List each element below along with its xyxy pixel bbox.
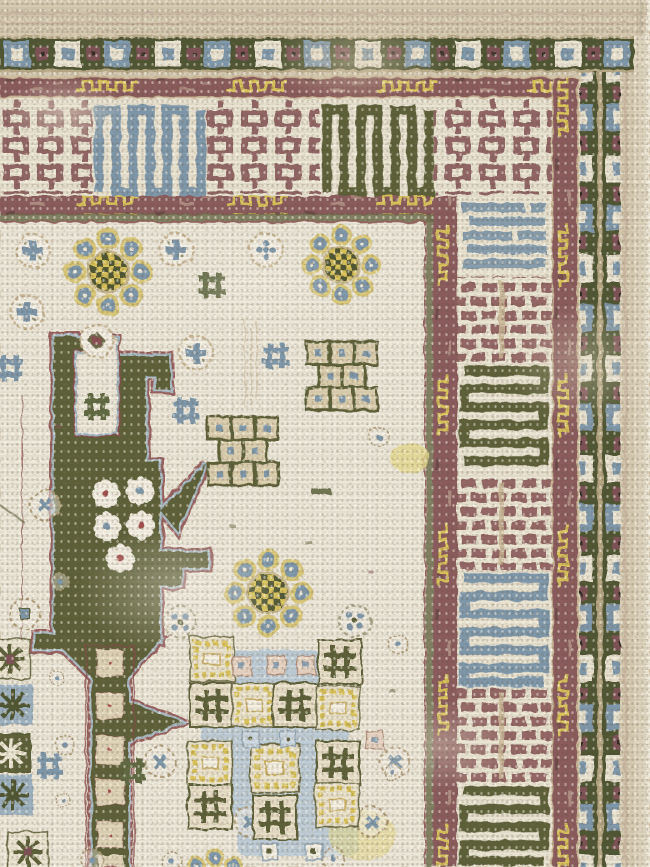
motif-square-yellow [190, 637, 234, 681]
motif-square-pink [267, 656, 285, 674]
motif-flower-red [105, 543, 134, 572]
motif-snow-blue [0, 685, 33, 725]
motif-rosette-large [224, 549, 313, 638]
motif-square-gate [190, 683, 234, 727]
motif-rosette-star [81, 325, 114, 358]
motif-circle-square [10, 599, 40, 629]
main-border-top-panels [0, 100, 552, 194]
motif-square-cross [306, 844, 322, 860]
motif-square-yellow [251, 744, 299, 792]
motif-snow-cream [0, 639, 30, 679]
motif-rosette-dots [250, 234, 283, 267]
motif-rosette-cross [180, 337, 213, 370]
motif-square-pink [366, 731, 384, 749]
main-border-right-panels [456, 203, 552, 861]
motif-flower-red [91, 479, 120, 508]
motif-square-blue [243, 731, 259, 747]
motif-square-pink [297, 656, 315, 674]
motif-square-gate [316, 741, 360, 785]
motif-circle-x [357, 807, 387, 837]
motif-rosette-cross [160, 234, 193, 267]
motif-rosette-large [301, 225, 381, 305]
motif-square-yellow [316, 686, 360, 730]
motif-circle-dot [388, 634, 407, 653]
motif-circle-flower [339, 605, 371, 637]
motif-circle-x [145, 747, 175, 777]
motif-square-cross [262, 844, 278, 860]
motif-circle-dot [55, 735, 74, 754]
motif-square-gate [253, 795, 297, 839]
motif-square-yellow [188, 741, 232, 785]
chequer-border-right [580, 36, 620, 867]
motif-circle-dot [52, 574, 69, 591]
motif-flower-red [126, 510, 155, 539]
chequer-border-top [0, 36, 634, 72]
motif-snow-cream [8, 832, 48, 867]
rug-illustration [0, 0, 650, 867]
motif-circle-dot [369, 427, 388, 446]
motif-circle-dot [50, 671, 64, 685]
motif-square-blue [280, 731, 296, 747]
motif-square-gate [273, 683, 317, 727]
motif-flower-blue [125, 476, 154, 505]
motif-circle-flower [164, 606, 196, 638]
motif-snow-green [0, 733, 31, 773]
motif-rosette-large [64, 228, 153, 317]
rug-photo [0, 0, 650, 867]
motif-circle-x [30, 490, 60, 520]
motif-square-gate [188, 785, 232, 829]
motif-rosette-cross [11, 296, 44, 329]
motif-circle-dot [56, 793, 70, 807]
motif-rosette-cross [17, 235, 50, 268]
motif-circle-dot [385, 765, 402, 782]
motif-snow-blue [0, 775, 33, 815]
motif-brick-stack [208, 417, 278, 485]
motif-square-yellow [315, 783, 359, 827]
motif-square-pink [233, 657, 251, 675]
motif-square-yellow [232, 683, 276, 727]
motif-flower-blue [92, 512, 121, 541]
rug-weave [0, 0, 650, 867]
motif-square-gate [318, 640, 362, 684]
motif-brick-stack [307, 342, 377, 410]
